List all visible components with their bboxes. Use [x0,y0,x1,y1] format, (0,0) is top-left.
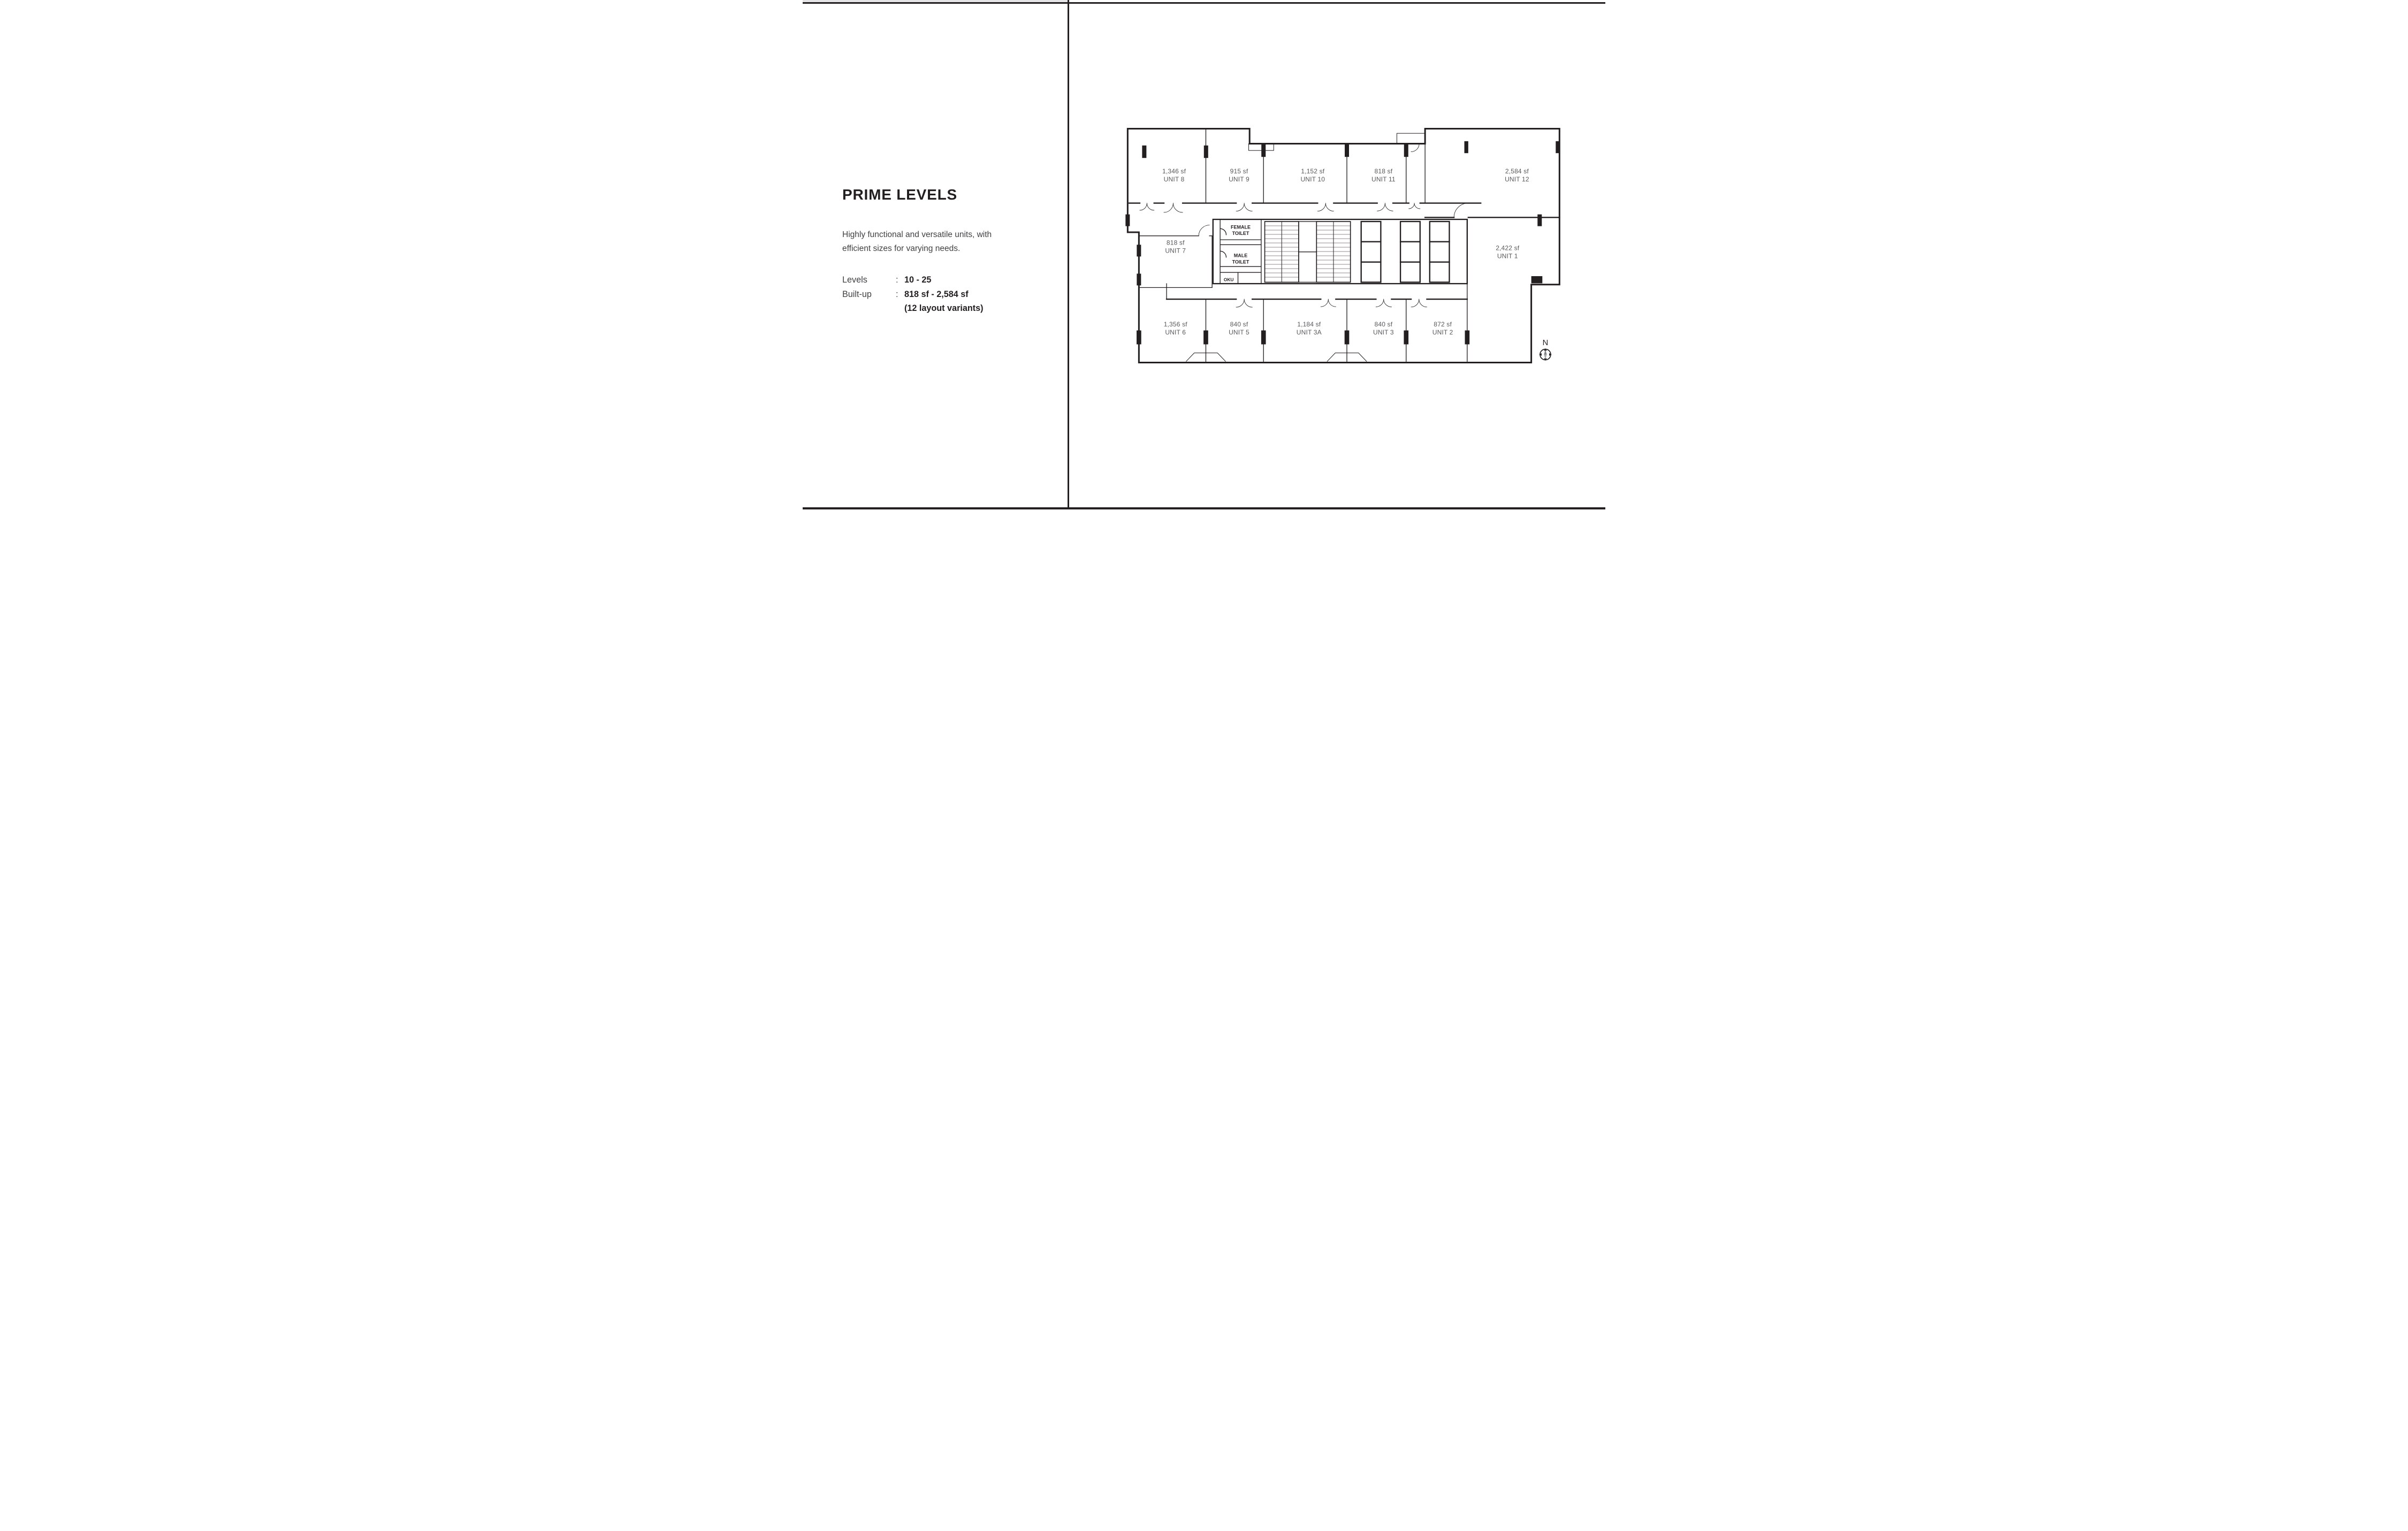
spec-separator: : [896,273,904,287]
stairwell-2 [1316,222,1350,282]
unit-label-unit-5: 840 sfUNIT 5 [1229,321,1249,336]
spec-row-variants: (12 layout variants) [842,301,1051,316]
spec-value: 818 sf - 2,584 sf [904,287,969,302]
floor-plan-svg: N 1,346 sfUNIT 8915 sfUNIT 91,152 sfUNIT… [1124,121,1570,375]
top-ledges [1249,133,1426,150]
elevator-bank-a [1361,222,1420,282]
description-line-2: efficient sizes for varying needs. [842,242,1051,256]
spec-separator [896,301,904,316]
spec-row-builtup: Built-up : 818 sf - 2,584 sf [842,287,1051,302]
spec-separator: : [896,287,904,302]
unit-label-unit-1: 2,422 sfUNIT 1 [1496,244,1520,260]
unit-label-unit-6: 1,356 sfUNIT 6 [1164,321,1188,336]
spec-row-levels: Levels : 10 - 25 [842,273,1051,287]
spec-value: (12 layout variants) [904,301,984,316]
unit-label-unit-3a: 1,184 sfUNIT 3A [1297,321,1322,336]
columns [1125,141,1559,345]
unit7-walls [1139,225,1212,288]
spec-label: Levels [842,273,896,287]
elevator-bank-b [1430,222,1450,282]
unit-label-unit-11: 818 sfUNIT 11 [1371,167,1396,183]
service-cells [1299,222,1316,282]
page-title: PRIME LEVELS [842,186,1051,203]
core-label-oku: OKU [1224,277,1234,283]
top-row-dividers [1206,128,1425,203]
top-rule [803,2,1605,4]
unit-labels: 1,346 sfUNIT 8915 sfUNIT 91,152 sfUNIT 1… [1162,167,1529,336]
description-line-1: Highly functional and versatile units, w… [842,228,1051,242]
vertical-divider [1068,0,1069,507]
unit-label-unit-7: 818 sfUNIT 7 [1165,239,1186,254]
spec-label [842,301,896,316]
lower-corridor-door-arcs [1236,299,1427,307]
bottom-rule [803,507,1605,509]
entry-canopies [1186,353,1367,361]
building-outline [1127,128,1559,362]
left-panel: PRIME LEVELS Highly functional and versa… [842,186,1051,316]
unit-label-unit-12: 2,584 sfUNIT 12 [1505,167,1529,183]
spec-label: Built-up [842,287,896,302]
unit-label-unit-10: 1,152 sfUNIT 10 [1300,167,1325,183]
spec-list: Levels : 10 - 25 Built-up : 818 sf - 2,5… [842,273,1051,316]
unit-label-unit-8: 1,346 sfUNIT 8 [1162,167,1186,183]
brochure-page: PRIME LEVELS Highly functional and versa… [803,0,1605,511]
core [1213,219,1467,284]
core-label-female-toilet: FEMALETOILET [1231,224,1251,236]
core-label-male-toilet: MALETOILET [1232,253,1249,265]
stairwell-1 [1265,222,1299,282]
compass-north-label: N [1543,339,1549,347]
unit-label-unit-3: 840 sfUNIT 3 [1373,321,1394,336]
unit-label-unit-9: 915 sfUNIT 9 [1229,167,1249,183]
floor-plan: N 1,346 sfUNIT 8915 sfUNIT 91,152 sfUNIT… [1124,121,1570,375]
compass: N [1539,339,1551,361]
spec-value: 10 - 25 [904,273,931,287]
unit-label-unit-2: 872 sfUNIT 2 [1432,321,1453,336]
core-room-labels: FEMALETOILETMALETOILETOKU [1224,224,1251,282]
description: Highly functional and versatile units, w… [842,228,1051,256]
